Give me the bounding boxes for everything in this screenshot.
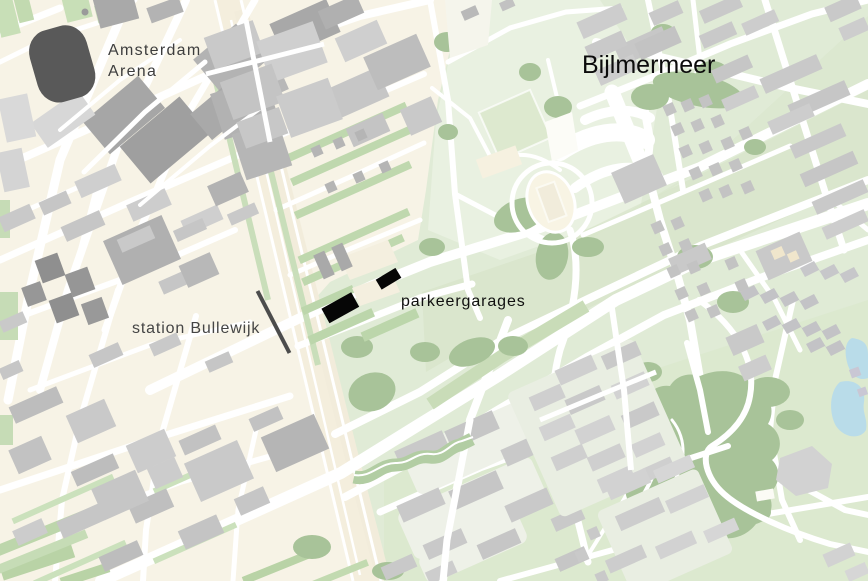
svg-text:Amsterdam: Amsterdam (108, 42, 202, 59)
svg-text:Arena: Arena (108, 63, 157, 80)
svg-text:Bijlmermeer: Bijlmermeer (582, 51, 715, 79)
svg-text:parkeergarages: parkeergarages (401, 293, 526, 310)
svg-text:station Bullewijk: station Bullewijk (132, 320, 260, 337)
